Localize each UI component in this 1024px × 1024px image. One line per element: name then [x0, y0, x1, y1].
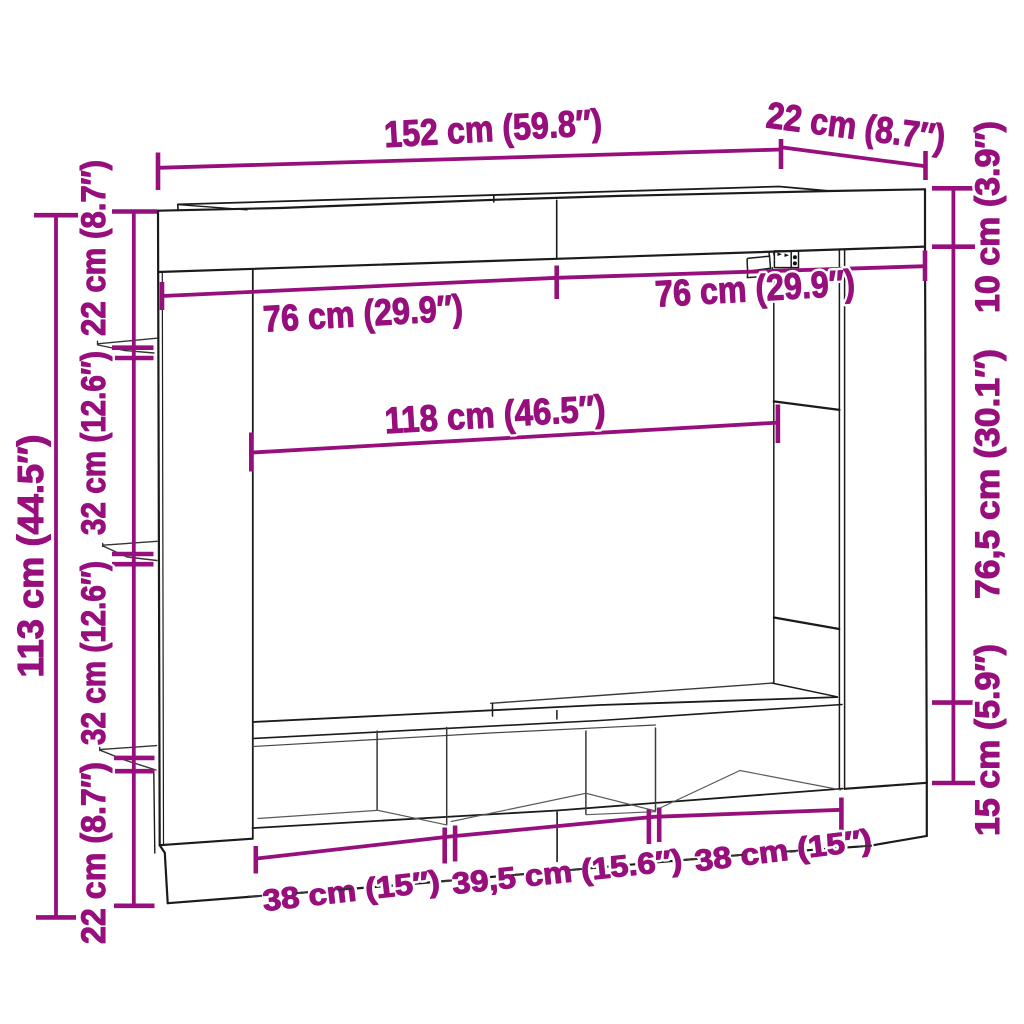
svg-text:39,5 cm (15.6″): 39,5 cm (15.6″): [451, 844, 684, 901]
svg-text:32 cm (12.6″): 32 cm (12.6″): [75, 561, 113, 745]
svg-text:15 cm (5.9″): 15 cm (5.9″): [969, 644, 1007, 836]
svg-text:22 cm (8.7″): 22 cm (8.7″): [75, 160, 113, 336]
svg-text:113 cm (44.5″): 113 cm (44.5″): [10, 435, 51, 678]
svg-text:22 cm (8.7″): 22 cm (8.7″): [75, 762, 113, 944]
svg-text:152 cm (59.8″): 152 cm (59.8″): [383, 102, 603, 155]
svg-text:38 cm (15″): 38 cm (15″): [261, 865, 442, 918]
svg-text:38 cm (15″): 38 cm (15″): [693, 824, 874, 878]
svg-text:10 cm (3.9″): 10 cm (3.9″): [969, 121, 1007, 313]
svg-text:32 cm (12.6″): 32 cm (12.6″): [75, 351, 113, 535]
svg-text:76,5 cm (30.1″): 76,5 cm (30.1″): [969, 349, 1007, 599]
svg-text:76 cm (29.9″): 76 cm (29.9″): [262, 287, 464, 339]
svg-text:76 cm (29.9″): 76 cm (29.9″): [654, 262, 856, 314]
